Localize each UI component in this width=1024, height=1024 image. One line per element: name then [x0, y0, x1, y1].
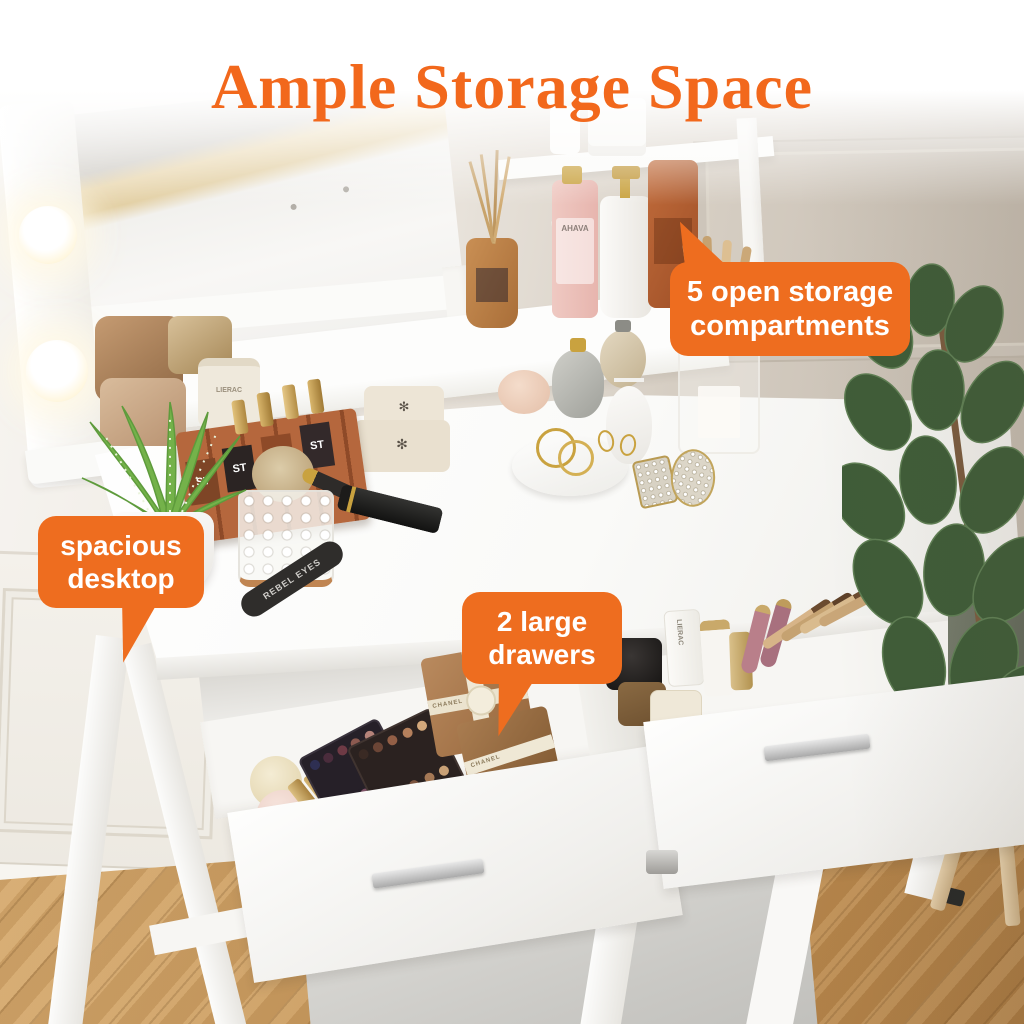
- led-bulb: [26, 340, 88, 402]
- pump-head: [612, 166, 640, 179]
- pump-stem: [620, 176, 630, 198]
- earring-bar: [614, 378, 644, 382]
- jar-logo-icon: ✻: [396, 436, 408, 452]
- jar-logo-icon: ✻: [399, 399, 410, 414]
- callout-storage-line1: 5 open storage: [687, 275, 893, 309]
- lotion-pump-bottle: [600, 196, 652, 318]
- adjustable-foot: [646, 850, 678, 874]
- rack-label: ST: [309, 439, 325, 453]
- vanity-product-image: CHANEL CHANEL LIERAC AHAVA: [0, 0, 1024, 1024]
- callout-drawers-line2: drawers: [488, 638, 595, 671]
- bottle-cap: [562, 166, 582, 184]
- perfume-cap: [615, 320, 631, 332]
- powder-puff: [498, 370, 550, 414]
- callout-drawers-line1: 2 large: [497, 605, 587, 638]
- holder-label: [698, 386, 740, 438]
- ribbon-label: CHANEL: [470, 754, 501, 769]
- aloe-leaves: [82, 402, 246, 526]
- serum-bottle: LIERAC: [663, 609, 704, 687]
- callout-storage-line2: compartments: [690, 309, 890, 343]
- headline-title: Ample Storage Space: [0, 50, 1024, 124]
- callout-desktop: spacious desktop: [38, 516, 204, 608]
- gold-earring: [618, 433, 638, 457]
- earring-stand: [606, 386, 652, 464]
- gold-hoop: [558, 440, 594, 476]
- callout-desktop-line2: desktop: [67, 562, 174, 595]
- ribbon-label: CHANEL: [432, 699, 464, 710]
- diffuser-label: [476, 268, 508, 302]
- serum-bottle-label: LIERAC: [675, 619, 684, 645]
- striped-jar: ✻: [354, 420, 450, 472]
- led-bulb: [19, 206, 77, 264]
- reed-diffuser: [466, 238, 518, 328]
- cream-jar-label: LIERAC: [216, 387, 242, 394]
- bottle-brand: AHAVA: [561, 224, 588, 233]
- callout-drawers: 2 large drawers: [462, 592, 622, 684]
- callout-storage: 5 open storage compartments: [670, 262, 910, 356]
- callout-desktop-line1: spacious: [60, 529, 181, 562]
- toner-bottle: AHAVA: [552, 180, 598, 318]
- perfume-bottle: [552, 350, 604, 418]
- screw-detail: [290, 204, 297, 211]
- bottle-label: AHAVA: [556, 218, 594, 284]
- perfume-cap: [570, 338, 586, 352]
- screw-detail: [343, 186, 350, 193]
- aloe-plant: [78, 400, 250, 528]
